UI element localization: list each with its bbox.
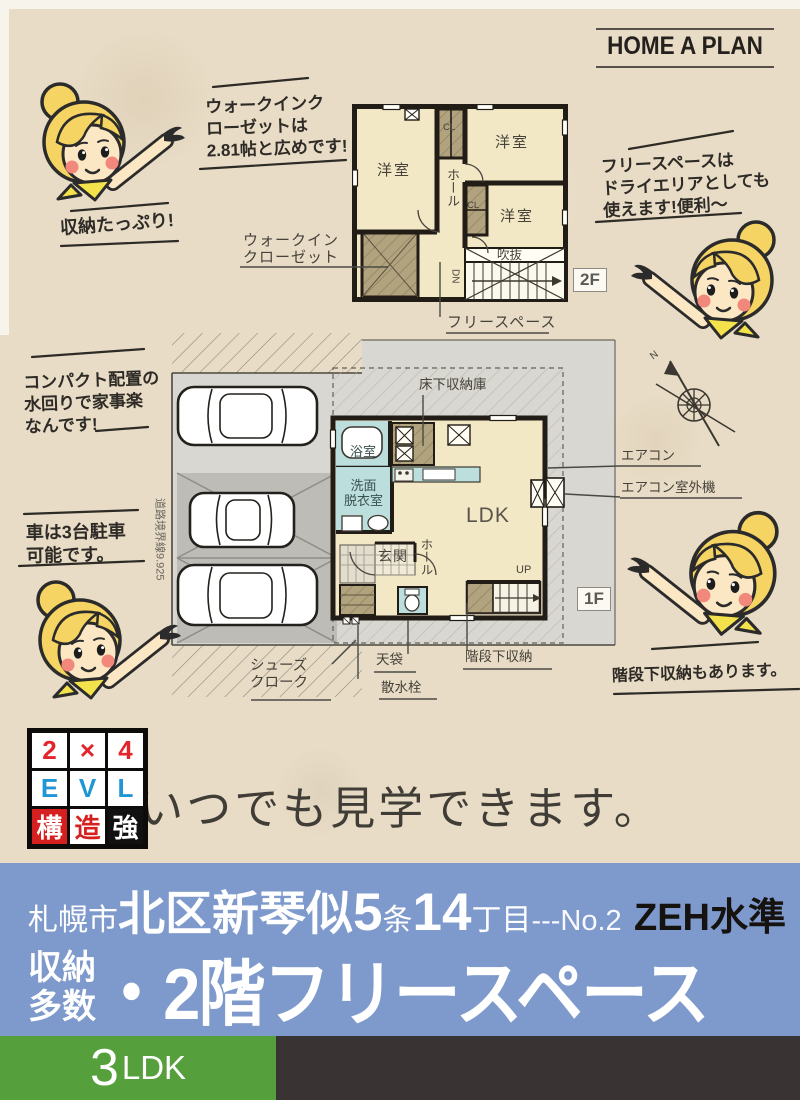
- label-walkin-closet: ウォークイン クローゼット: [243, 232, 339, 267]
- address-jo: 条: [382, 895, 412, 939]
- headline-sub-2: 多数: [28, 988, 96, 1026]
- company-logo: HOME A PLAN: [596, 24, 774, 70]
- structure-cell-l: L: [108, 771, 143, 806]
- room-label-ldk: LDK: [466, 504, 510, 528]
- structure-cell-2: 2: [32, 733, 67, 768]
- headline-sub-1: 収納: [28, 949, 96, 987]
- headline-sub: 収納 多数: [28, 949, 96, 1025]
- structure-cell-e: E: [32, 771, 67, 806]
- address-banner: 札幌市 北区新琴似 5 条 14 丁目 ---No.2 ZEH水準 収納 多数 …: [0, 863, 800, 1036]
- headline: 収納 多数 ・2階フリースペース: [28, 935, 754, 1040]
- address-district: 北区新琴似: [118, 875, 353, 944]
- room-label-hall-1f: ホール: [418, 538, 432, 596]
- room-label-genkan: 玄関: [378, 548, 408, 564]
- company-logo-text: HOME A PLAN: [605, 32, 765, 61]
- address-number: ---No.2: [531, 905, 621, 938]
- zeh-badge: ZEH水準: [634, 886, 786, 941]
- label-aircon-outdoor: エアコン室外機: [621, 480, 716, 496]
- address-five: 5: [353, 882, 382, 943]
- address-block: 14: [412, 882, 471, 943]
- label-freespace: フリースペース: [447, 314, 556, 331]
- closet-label-cl2: CL: [467, 201, 479, 212]
- label-sansui: 散水栓: [381, 680, 422, 696]
- structure-cell-4: 4: [108, 733, 143, 768]
- label-aircon: エアコン: [621, 448, 675, 464]
- ldk-box: 3 LDK: [0, 1036, 276, 1100]
- structure-cell-kou: 構: [32, 809, 67, 844]
- stairs-label-dn: DN: [449, 269, 461, 295]
- note-cars: 車は3台駐車 可能です。: [26, 520, 127, 569]
- floor-badge-2f: 2F: [573, 268, 607, 292]
- address-city: 札幌市: [28, 895, 118, 939]
- structure-cell-v: V: [70, 771, 105, 806]
- note-freespace: フリースペースは ドライエリアとしても 使えます!便利〜: [600, 148, 771, 223]
- label-understair-storage: 階段下収納: [465, 649, 533, 665]
- structure-cell-kyou: 強: [108, 809, 143, 844]
- mascot-girl-bottom-right: [624, 506, 800, 664]
- label-shoes-cloak: シューズ クローク: [250, 658, 308, 691]
- stairs-label-up: UP: [516, 564, 531, 577]
- ldk-type: LDK: [122, 1049, 186, 1087]
- structure-logo-2x4: 2 × 4 E V L 構 造 強: [27, 728, 148, 849]
- room-label-bath: 浴室: [350, 445, 376, 460]
- headline-main: ・2階フリースペース: [98, 935, 708, 1040]
- address-chome: 丁目: [471, 895, 531, 939]
- room-label-yoshitsu-1: 洋室: [377, 162, 411, 179]
- floor-badge-1f: 1F: [577, 587, 611, 611]
- room-label-hall-2f: ホール: [444, 168, 459, 230]
- note-walkin-closet: ウォークインク ローゼットは 2.81帖と広めです!: [205, 92, 348, 163]
- room-label-senmen: 洗面 脱衣室: [344, 479, 383, 509]
- mascot-girl-top-left: [18, 78, 188, 228]
- label-road-boundary: 道路境界線9.925: [153, 498, 166, 633]
- label-tenbukuro: 天袋: [376, 652, 403, 668]
- footer-dark-bar: [276, 1036, 800, 1100]
- flyer-page: { "colors":{"paper":"#e8dcc6","banner_bl…: [0, 0, 800, 1100]
- void-label-fukinuke: 吹抜: [497, 248, 522, 262]
- room-label-yoshitsu-2: 洋室: [495, 134, 529, 151]
- ldk-number: 3: [90, 1038, 119, 1098]
- closet-label-cl1: CL: [443, 123, 455, 134]
- address-line: 札幌市 北区新琴似 5 条 14 丁目 ---No.2 ZEH水準: [28, 875, 786, 944]
- label-floor-storage: 床下収納庫: [419, 377, 487, 393]
- mascot-girl-right-2f: [628, 216, 798, 366]
- room-label-yoshitsu-3: 洋室: [500, 208, 534, 225]
- structure-cell-x: ×: [70, 733, 105, 768]
- note-compact: コンパクト配置の 水回りで家事楽 なんです!: [23, 368, 161, 439]
- structure-cell-zou: 造: [70, 809, 105, 844]
